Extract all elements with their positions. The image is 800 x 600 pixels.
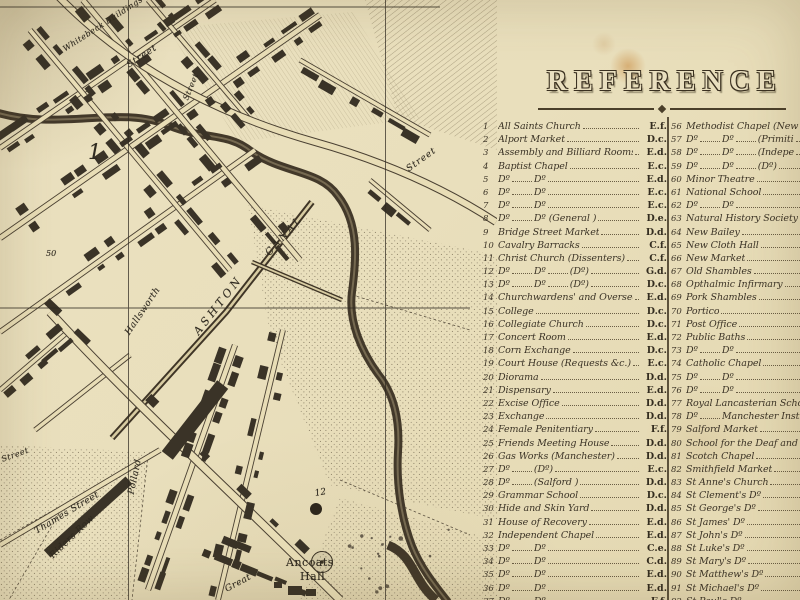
entry-grid-ref: D.c. (641, 345, 667, 357)
entry-number: 90 (671, 569, 686, 581)
entry-grid-ref: D.c. (641, 319, 667, 331)
dotted-leader (763, 488, 800, 498)
entry-grid-ref: E.d. (641, 174, 667, 186)
map-label: 50 (46, 250, 56, 258)
entry-name: Scotch Chapel (686, 451, 754, 463)
dotted-leader (700, 370, 720, 380)
entry-name: Cavalry Barracks (498, 240, 580, 252)
dotted-leader (747, 251, 800, 261)
dotted-leader (754, 264, 800, 274)
entry-name: Corn Exchange (498, 345, 571, 357)
dotted-leader (548, 277, 568, 287)
dotted-leader (748, 554, 800, 564)
dotted-leader (736, 370, 800, 380)
entry-number: 62 (671, 200, 686, 212)
dotted-leader (736, 343, 800, 353)
legend-entry: 3Assembly and Billiard RoomsE.d. (483, 145, 667, 158)
legend-entry: 2Alport MarketD.c. (483, 132, 667, 145)
dotted-leader (736, 198, 800, 208)
dotted-leader (512, 172, 532, 182)
dotted-leader (548, 172, 639, 182)
entry-name: Royal Lancasterian Scho (686, 398, 800, 410)
legend-entry: 64New Bailey (671, 225, 800, 238)
entry-grid-ref: D.e. (641, 213, 667, 225)
entry-name: Collegiate Church (498, 319, 584, 331)
legend-entry: 60Minor Theatre (671, 172, 800, 185)
entry-number: 18 (483, 345, 498, 357)
dotted-leader (548, 185, 639, 195)
legend-entry: 90St Matthew's Dº (671, 567, 800, 580)
legend-entry: 73DºDº (671, 343, 800, 356)
entry-name: Salford Market (686, 424, 758, 436)
legend-entry: 79Salford Market (671, 422, 800, 435)
dotted-leader (757, 172, 800, 182)
entry-number: 64 (671, 227, 686, 239)
entry-name: Excise Office (498, 398, 560, 410)
entry-name: Dº (722, 372, 734, 384)
entry-name: St Paul's Dº (686, 596, 742, 600)
entry-grid-ref: E.c. (641, 161, 667, 173)
dotted-leader (760, 422, 800, 432)
legend-entry: 92St Paul's Dº (671, 594, 800, 600)
dotted-leader (635, 290, 639, 300)
entry-name: Dº (498, 477, 510, 489)
entry-name: (Dº) (758, 161, 777, 173)
entry-name: New Cloth Hall (686, 240, 759, 252)
entry-grid-ref: E.c. (641, 464, 667, 476)
entry-grid-ref: G.d. (641, 266, 667, 278)
entry-number: 16 (483, 319, 498, 331)
dotted-leader (580, 475, 639, 485)
entry-number: 83 (671, 477, 686, 489)
entry-name: (Primiti (758, 134, 794, 146)
dotted-leader (774, 462, 800, 472)
entry-grid-ref: E.d. (641, 292, 667, 304)
entry-name: St George's Dº (686, 503, 756, 515)
dotted-leader (758, 501, 800, 511)
ornament-line (670, 108, 786, 110)
entry-grid-ref: F.f. (641, 424, 667, 436)
legend-entry: 57DºDº(Primiti (671, 132, 800, 145)
legend-entry: 30Hide and Skin YardD.d. (483, 501, 667, 514)
entry-number: 21 (483, 385, 498, 397)
entry-number: 86 (671, 517, 686, 529)
entry-name: Dº (686, 147, 698, 159)
entry-name: Dº (534, 556, 546, 568)
legend-entry: 83St Anne's Church (671, 475, 800, 488)
legend-entry: 4Baptist ChapelE.c. (483, 159, 667, 172)
entry-number: 24 (483, 424, 498, 436)
entry-number: 82 (671, 464, 686, 476)
legend-entry: 20DioramaD.d. (483, 370, 667, 383)
entry-number: 91 (671, 583, 686, 595)
entry-name: (Indepe (758, 147, 794, 159)
dotted-leader (512, 581, 532, 591)
entry-name: Court House (Requests &c.) (498, 358, 631, 370)
entry-name: Dº (686, 372, 698, 384)
entry-name: Dº (498, 174, 510, 186)
entry-name: Concert Room (498, 332, 566, 344)
dotted-leader (736, 132, 756, 142)
entry-grid-ref: D.d. (641, 372, 667, 384)
entry-name: Dº (498, 200, 510, 212)
legend-column-left: 1All Saints ChurchE.f.2Alport MarketD.c.… (483, 119, 667, 600)
legend-entry: 35DºDºE.d. (483, 567, 667, 580)
entry-number: 75 (671, 372, 686, 384)
entry-grid-ref: E.d. (641, 385, 667, 397)
entry-name: (Dº) (570, 279, 589, 291)
legend-entry: 78DºManchester Institu (671, 409, 800, 422)
entry-name: St Clement's Dº (686, 490, 761, 502)
entry-name: Dº (498, 213, 510, 225)
entry-name: St Anne's Church (686, 477, 768, 489)
dotted-leader (512, 541, 532, 551)
entry-number: 72 (671, 332, 686, 344)
dotted-leader (546, 409, 639, 419)
entry-number: 65 (671, 240, 686, 252)
dotted-leader (548, 554, 639, 564)
title-ornament (538, 106, 786, 112)
entry-name: Post Office (686, 319, 737, 331)
entry-number: 11 (483, 253, 498, 265)
dotted-leader (512, 211, 532, 221)
entry-number: 1 (483, 121, 498, 133)
dotted-leader (763, 185, 800, 195)
legend-entry: 22Excise OfficeD.d. (483, 396, 667, 409)
dotted-leader (736, 383, 800, 393)
entry-name: Dº (498, 543, 510, 555)
legend-entry: 28Dº(Salford )D.d. (483, 475, 667, 488)
entry-grid-ref: E.d. (641, 332, 667, 344)
entry-number: 27 (483, 464, 498, 476)
entry-number: 33 (483, 543, 498, 555)
entry-number: 76 (671, 385, 686, 397)
entry-name: (Dº) (534, 464, 553, 476)
legend-entry: 82Smithfield Market (671, 462, 800, 475)
map-sheet: 15012AncoatsHallASHTONCANALWhitebeck Bui… (0, 0, 800, 600)
entry-number: 15 (483, 306, 498, 318)
dotted-leader (700, 409, 720, 419)
entry-number: 17 (483, 332, 498, 344)
dotted-leader (512, 264, 532, 274)
entry-grid-ref: D.c. (641, 134, 667, 146)
entry-grid-ref: E.f. (641, 121, 667, 133)
entry-number: 22 (483, 398, 498, 410)
entry-number: 88 (671, 543, 686, 555)
entry-number: 26 (483, 451, 498, 463)
dotted-leader (586, 317, 639, 327)
entry-grid-ref: C.f. (641, 253, 667, 265)
legend-entry: 31House of RecoveryE.d. (483, 515, 667, 528)
legend-entry: 56Methodist Chapel (New Co (671, 119, 800, 132)
entry-name: St Luke's Dº (686, 543, 745, 555)
entry-name: Dº (722, 345, 734, 357)
dotted-leader (555, 462, 639, 472)
entry-name: Dº (686, 161, 698, 173)
entry-name: Dº (498, 279, 510, 291)
entry-number: 85 (671, 503, 686, 515)
legend-entry: 74Catholic Chapel (671, 356, 800, 369)
entry-number: 2 (483, 134, 498, 146)
legend-entry: 25Friends Meeting HouseD.d. (483, 436, 667, 449)
entry-name: Public Baths (686, 332, 745, 344)
dotted-leader (548, 264, 568, 274)
dotted-leader (568, 330, 639, 340)
map-label: Hall (300, 571, 325, 582)
dotted-leader (736, 159, 756, 169)
legend-entry: 21DispensaryE.d. (483, 383, 667, 396)
dotted-leader (591, 264, 639, 274)
entry-name: Dº (686, 385, 698, 397)
dotted-leader (742, 225, 800, 235)
legend-entry: 6DºDºE.c. (483, 185, 667, 198)
legend-entry: 9Bridge Street MarketD.d. (483, 225, 667, 238)
legend-entry: 61National School (671, 185, 800, 198)
entry-number: 74 (671, 358, 686, 370)
entry-number: 3 (483, 147, 498, 159)
entry-name: Dº (534, 543, 546, 555)
entry-number: 4 (483, 161, 498, 173)
entry-number: 70 (671, 306, 686, 318)
entry-grid-ref: E.d. (641, 530, 667, 542)
entry-name: House of Recovery (498, 517, 587, 529)
legend-entry: 85St George's Dº (671, 501, 800, 514)
legend-entry: 66New Market (671, 251, 800, 264)
entry-name: New Market (686, 253, 745, 265)
dotted-leader (512, 475, 532, 485)
entry-name: Dº (General ) (534, 213, 596, 225)
legend-entry: 71Post Office (671, 317, 800, 330)
entry-name: Portico (686, 306, 719, 318)
entry-number: 7 (483, 200, 498, 212)
dotted-leader (548, 594, 639, 600)
entry-name: Dº (498, 583, 510, 595)
entry-number: 9 (483, 227, 498, 239)
legend-entry: 84St Clement's Dº (671, 488, 800, 501)
dotted-leader (548, 567, 639, 577)
entry-number: 61 (671, 187, 686, 199)
legend-entry: 24Female PenitentiaryF.f. (483, 422, 667, 435)
legend-entry: 59DºDº(Dº) (671, 159, 800, 172)
entry-grid-ref: E.d. (641, 147, 667, 159)
dotted-leader (796, 145, 800, 155)
dotted-leader (796, 132, 800, 142)
entry-name: Dº (686, 200, 698, 212)
legend-entry: 86St James' Dº (671, 515, 800, 528)
entry-number: 10 (483, 240, 498, 252)
entry-name: Catholic Chapel (686, 358, 761, 370)
entry-number: 19 (483, 358, 498, 370)
entry-number: 31 (483, 517, 498, 529)
entry-number: 14 (483, 292, 498, 304)
dotted-leader (744, 594, 800, 600)
site-12-marker (310, 503, 322, 515)
dotted-leader (512, 567, 532, 577)
entry-grid-ref: F.f. (641, 596, 667, 600)
entry-number: 5 (483, 174, 498, 186)
entry-number: 35 (483, 569, 498, 581)
entry-name: Dº (498, 569, 510, 581)
entry-grid-ref: D.c. (641, 490, 667, 502)
legend-entry: 70Portico (671, 304, 800, 317)
legend-entry: 72Public Baths (671, 330, 800, 343)
entry-grid-ref: D.d. (641, 438, 667, 450)
dotted-leader (589, 515, 639, 525)
legend-entry: 10Cavalry BarracksC.f. (483, 238, 667, 251)
dotted-leader (601, 225, 639, 235)
entry-number: 20 (483, 372, 498, 384)
entry-name: Dº (686, 411, 698, 423)
entry-name: Independent Chapel (498, 530, 594, 542)
entry-name: Dº (534, 187, 546, 199)
entry-name: Dº (534, 266, 546, 278)
legend-entry: 37DºDºF.f. (483, 594, 667, 600)
entry-name: Dº (498, 187, 510, 199)
dotted-leader (700, 132, 720, 142)
legend-entry: 5DºDºE.d. (483, 172, 667, 185)
entry-name: Minor Theatre (686, 174, 755, 186)
legend-entry: 8DºDº (General )D.e. (483, 211, 667, 224)
entry-grid-ref: E.d. (641, 517, 667, 529)
legend-entry: 14Churchwardens' and Overseers' OfficeE.… (483, 290, 667, 303)
entry-name: Hide and Skin Yard (498, 503, 589, 515)
legend-column-right: 56Methodist Chapel (New Co57DºDº(Primiti… (671, 119, 800, 600)
legend-entry: 89St Mary's Dº (671, 554, 800, 567)
dotted-leader (700, 198, 720, 208)
entry-name: Dº (498, 556, 510, 568)
legend-entry: 87St John's Dº (671, 528, 800, 541)
entry-name: St Mary's Dº (686, 556, 746, 568)
dotted-leader (548, 581, 639, 591)
entry-number: 89 (671, 556, 686, 568)
entry-name: Pork Shambles (686, 292, 757, 304)
dotted-leader (536, 304, 639, 314)
entry-number: 34 (483, 556, 498, 568)
entry-number: 6 (483, 187, 498, 199)
entry-grid-ref: D.d. (641, 503, 667, 515)
dotted-leader (745, 528, 800, 538)
entry-name: Dº (534, 583, 546, 595)
entry-name: (Salford ) (534, 477, 579, 489)
dotted-leader (598, 211, 639, 221)
entry-name: Dº (498, 464, 510, 476)
dotted-leader (548, 198, 639, 208)
entry-number: 23 (483, 411, 498, 423)
dotted-leader (573, 343, 639, 353)
entry-grid-ref: C.d. (641, 556, 667, 568)
entry-name: Manchester Institu (722, 411, 800, 423)
dotted-leader (512, 594, 532, 600)
entry-grid-ref: E.d. (641, 569, 667, 581)
entry-name: Dº (722, 385, 734, 397)
entry-name: Dº (534, 569, 546, 581)
entry-name: All Saints Church (498, 121, 581, 133)
dotted-leader (548, 541, 639, 551)
entry-name: St James' Dº (686, 517, 745, 529)
legend-entry: 13DºDº(Dº)D.c. (483, 277, 667, 290)
entry-name: Female Penitentiary (498, 424, 593, 436)
dotted-leader (700, 145, 720, 155)
entry-name: Christ Church (Dissenters) (498, 253, 625, 265)
entry-number: 87 (671, 530, 686, 542)
legend-entry: 26Gas Works (Manchester)D.d. (483, 449, 667, 462)
dotted-leader (747, 515, 800, 525)
entry-number: 67 (671, 266, 686, 278)
legend-entry: 77Royal Lancasterian Scho (671, 396, 800, 409)
dotted-leader (739, 317, 800, 327)
dotted-leader (591, 501, 639, 511)
entry-number: 36 (483, 583, 498, 595)
dotted-leader (770, 475, 800, 485)
legend-entry: 27Dº(Dº)E.c. (483, 462, 667, 475)
entry-number: 13 (483, 279, 498, 291)
legend-entry: 1All Saints ChurchE.f. (483, 119, 667, 132)
entry-grid-ref: D.c. (641, 306, 667, 318)
entry-name: Smithfield Market (686, 464, 772, 476)
column-divider (667, 117, 669, 600)
dotted-leader (512, 554, 532, 564)
entry-number: 37 (483, 596, 498, 600)
legend-entry: 63Natural History Society (671, 211, 800, 224)
entry-number: 77 (671, 398, 686, 410)
dotted-leader (596, 528, 639, 538)
entry-number: 81 (671, 451, 686, 463)
dotted-leader (785, 277, 800, 287)
legend-entry: 11Christ Church (Dissenters)C.f. (483, 251, 667, 264)
legend-entry: 75DºDº (671, 370, 800, 383)
dotted-leader (627, 251, 639, 261)
legend-entry: 91St Michael's Dº (671, 581, 800, 594)
reference-title: REFERENCE (547, 66, 787, 98)
entry-number: 12 (483, 266, 498, 278)
entry-number: 58 (671, 147, 686, 159)
legend-entry: 58DºDº(Indepe (671, 145, 800, 158)
legend-entry: 18Corn ExchangeD.c. (483, 343, 667, 356)
legend-entry: 62DºDº (671, 198, 800, 211)
legend-entry: 23ExchangeD.d. (483, 409, 667, 422)
dotted-leader (747, 541, 800, 551)
dotted-leader (567, 132, 639, 142)
map-label: 1 (88, 142, 101, 163)
dotted-leader (553, 383, 639, 393)
dotted-leader (611, 436, 639, 446)
dotted-leader (591, 277, 639, 287)
entry-number: 80 (671, 438, 686, 450)
legend-entry: 68Opthalmic Infirmary (671, 277, 800, 290)
dotted-leader (756, 449, 800, 459)
entry-grid-ref: E.c. (641, 187, 667, 199)
dotted-leader (763, 356, 800, 366)
entry-number: 78 (671, 411, 686, 423)
entry-name: St Michael's Dº (686, 583, 759, 595)
entry-number: 60 (671, 174, 686, 186)
entry-number: 84 (671, 490, 686, 502)
entry-number: 92 (671, 596, 686, 600)
dotted-leader (512, 462, 532, 472)
dotted-leader (562, 396, 639, 406)
entry-grid-ref: E.c. (641, 200, 667, 212)
entry-grid-ref: E.c. (641, 358, 667, 370)
dotted-leader (759, 290, 800, 300)
entry-grid-ref: D.c. (641, 279, 667, 291)
entry-grid-ref: C.e. (641, 543, 667, 555)
entry-grid-ref: D.d. (641, 398, 667, 410)
entry-number: 56 (671, 121, 686, 133)
legend-entry: 81Scotch Chapel (671, 449, 800, 462)
dotted-leader (541, 370, 639, 380)
legend-entry: 16Collegiate ChurchD.c. (483, 317, 667, 330)
entry-name: Dº (722, 200, 734, 212)
